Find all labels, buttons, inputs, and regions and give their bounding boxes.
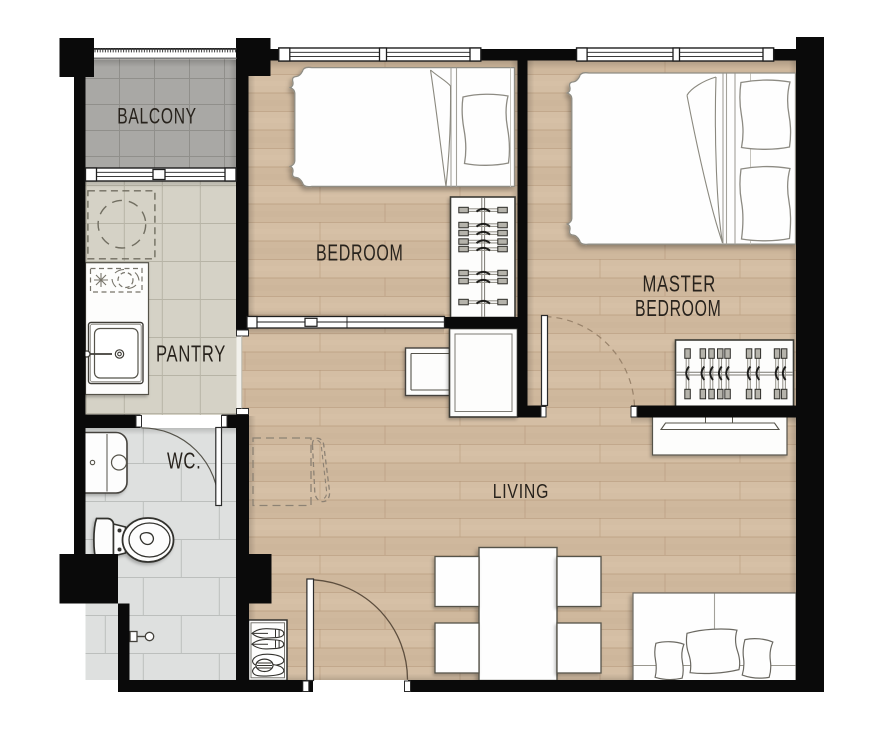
svg-text:PANTRY: PANTRY: [156, 341, 226, 367]
svg-text:BEDROOM: BEDROOM: [316, 240, 404, 266]
svg-text:BALCONY: BALCONY: [117, 103, 197, 128]
svg-text:MASTER: MASTER: [643, 271, 717, 297]
svg-text:LIVING: LIVING: [493, 481, 550, 503]
svg-text:WC.: WC.: [167, 447, 202, 473]
svg-text:BEDROOM: BEDROOM: [635, 295, 722, 321]
